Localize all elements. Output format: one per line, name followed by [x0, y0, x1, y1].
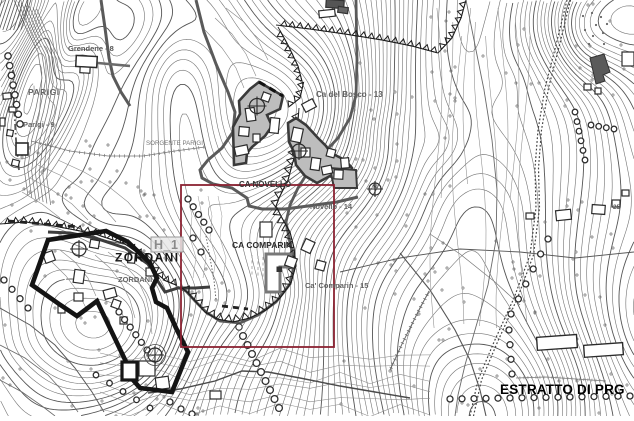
svg-text:25: 25	[613, 204, 621, 211]
svg-text:SORGENTE PARIGI: SORGENTE PARIGI	[146, 140, 203, 147]
svg-text:Parigi - 9: Parigi - 9	[23, 120, 55, 129]
svg-text:ESTRATTO DI PRG: ESTRATTO DI PRG	[500, 382, 625, 397]
svg-text:Grendene - 8: Grendene - 8	[68, 44, 114, 53]
svg-text:Ca' Comparin - 15: Ca' Comparin - 15	[305, 281, 368, 290]
svg-text:ZORDANI: ZORDANI	[115, 251, 179, 265]
svg-text:ZORDANI: ZORDANI	[118, 275, 152, 284]
svg-text:CA COMPARIN: CA COMPARIN	[232, 240, 292, 250]
svg-text:CA NOVELLO: CA NOVELLO	[239, 180, 291, 189]
svg-text:62: 62	[372, 184, 378, 189]
svg-text:Novello - 14: Novello - 14	[310, 202, 353, 211]
svg-text:PARIGI: PARIGI	[28, 87, 60, 97]
svg-text:Ca del Bosco - 13: Ca del Bosco - 13	[316, 90, 383, 99]
